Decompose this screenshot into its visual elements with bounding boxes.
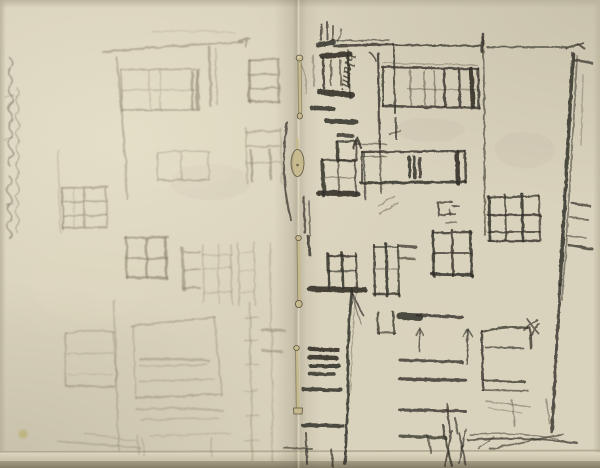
window-k-grid <box>374 244 399 334</box>
left-lower-window-outline <box>65 331 117 387</box>
left-roofline <box>103 31 249 52</box>
left-lower-large-rect <box>131 317 222 398</box>
window-d <box>361 151 466 199</box>
paper-smudge <box>395 118 465 142</box>
window-g-grid <box>488 194 540 241</box>
sketch-drawing <box>0 0 600 468</box>
window-j <box>482 319 550 427</box>
small-marks <box>378 118 401 214</box>
sketchbook-photo: blum. <box>0 0 600 468</box>
facade-corner-line <box>483 38 485 235</box>
left-ground-lines <box>58 433 140 448</box>
page-right-edge <box>593 0 600 468</box>
up-arrows <box>416 328 472 364</box>
drainpipe <box>345 290 363 464</box>
left-page-sketch <box>4 31 285 462</box>
left-lower-row-strokes <box>137 408 230 456</box>
left-window-block-near-binding <box>203 242 271 305</box>
window-b <box>382 63 479 108</box>
left-window-6-grid <box>62 187 108 229</box>
page-left-edge <box>0 0 6 468</box>
right-page-sketch <box>284 22 592 467</box>
building-right-edge <box>552 54 592 432</box>
window-e <box>319 160 357 196</box>
left-window-8-partial <box>182 248 200 290</box>
paper-smudge <box>495 132 555 168</box>
paper-stain <box>19 430 28 439</box>
window-h-grid <box>432 222 472 276</box>
window-f <box>438 202 459 216</box>
left-margin-inscription <box>4 58 19 239</box>
